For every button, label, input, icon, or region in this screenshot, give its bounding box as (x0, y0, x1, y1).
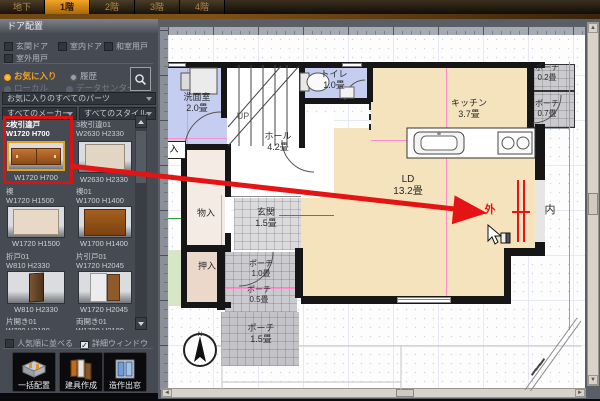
scroll-thumb[interactable] (136, 131, 146, 183)
part-item-title: 両開き01 W1700 H2180 (76, 317, 124, 330)
scroll-down-button[interactable]: ▼ (588, 375, 598, 385)
drawing-area[interactable]: 入 洗面室2.0畳 UP トイレ1.0畳 キッチン3.7畳 ホール4.2畳 LD… (168, 35, 585, 391)
filter-interior-door[interactable]: 室内ドア (58, 37, 102, 55)
part-thumbnail[interactable] (78, 141, 132, 173)
part-item-title: 3枚引違01 W2630 H2330 (76, 120, 124, 138)
detail-window-option[interactable]: ✓詳細ウィンドウ (80, 334, 148, 352)
part-item-title: 片引戸01 W1720 H2045 (76, 252, 124, 270)
part-item-title: 折戸01 W810 H2330 (6, 252, 50, 270)
part-item-title: 襖01 W1700 H1400 (76, 187, 124, 205)
tab-floor-4[interactable]: 4階 (180, 0, 225, 14)
room-label-hall: ホール4.2畳 (252, 131, 304, 153)
part-caption: W1720 H2045 (74, 305, 134, 314)
checkbox-icon[interactable] (104, 42, 113, 51)
tab-basement[interactable]: 地下 (0, 0, 45, 14)
part-caption: W1720 H700 (2, 173, 70, 182)
room-label-oshiire: 押入 (188, 261, 226, 272)
room-label-ld: LD13.2畳 (376, 174, 440, 198)
batch-place-button[interactable]: 一括配置 (12, 352, 56, 392)
room-label-porch10: ポーチ1.0畳 (238, 259, 284, 279)
sliding-door-2panel-image (11, 148, 61, 165)
option-label: 詳細ウィンドウ (92, 339, 148, 348)
diagonal-annotation (525, 318, 581, 391)
door-placement-panel: ドア配置 玄関ドア 室内ドア 和室用戸 室外用戸 お気に入り 履歴 ローカル デ… (0, 19, 158, 393)
scroll-up-button[interactable] (135, 115, 147, 128)
horizontal-ruler (168, 27, 585, 35)
window-midline (397, 299, 451, 300)
button-label: 建具作成 (65, 380, 97, 391)
tab-floor-1[interactable]: 1階 (45, 0, 90, 14)
fusuma01-image (84, 209, 126, 236)
triangle-down-icon (138, 322, 144, 326)
sliding-door-3panel-image (85, 144, 125, 170)
scroll-thumb[interactable] (588, 193, 598, 215)
room-label-porch02: ポーチ0.2畳 (524, 63, 570, 83)
checkbox-icon[interactable] (5, 339, 14, 348)
bay-window-icon (111, 358, 139, 380)
part-item-title: 片開き01 W780 H2180 (6, 317, 50, 330)
dropdown-value: お気に入りのすべてのパーツ (7, 94, 110, 103)
fixture-create-icon (67, 358, 95, 380)
folding-door-image (29, 272, 44, 302)
part-item-title: 襖 W1720 H1500 (6, 187, 54, 205)
part-caption: W1720 H1500 (2, 239, 70, 248)
filter-label: 和室用戸 (116, 42, 148, 51)
kitchen-counter-icon (407, 128, 535, 158)
checkbox-icon[interactable] (4, 54, 13, 63)
chevron-down-icon (146, 97, 152, 101)
part-thumbnail[interactable] (7, 271, 65, 304)
tab-floor-3[interactable]: 3階 (135, 0, 180, 14)
parts-scrollbar[interactable] (135, 115, 147, 330)
search-icon (134, 73, 147, 86)
tab-floor-2[interactable]: 2階 (90, 0, 135, 14)
batch-place-icon (19, 358, 49, 380)
button-label: 一括配置 (18, 380, 50, 391)
part-thumbnail[interactable] (78, 271, 132, 304)
divider (3, 348, 153, 349)
single-sliding-door-image (90, 273, 120, 302)
button-label: 造作出窓 (109, 380, 141, 391)
divider (3, 63, 153, 64)
scroll-up-button[interactable]: ▲ (588, 23, 598, 33)
filter-label: 室外用戸 (16, 54, 48, 63)
part-caption: W1700 H1400 (74, 239, 134, 248)
partial-room-label: 入 (168, 141, 186, 159)
scroll-down-button[interactable] (135, 317, 147, 330)
sort-by-popularity-option[interactable]: 人気順に並べる (5, 334, 73, 352)
stairs-up-label: UP (228, 111, 258, 122)
room-label-porch05: ポーチ0.5畳 (236, 285, 282, 305)
outside-label: 外 (480, 205, 500, 216)
room-label-kitchen: キッチン3.7畳 (438, 98, 500, 120)
part-caption: W810 H2330 (2, 305, 70, 314)
site-boundary (189, 346, 581, 391)
part-thumbnail-selected[interactable] (7, 141, 65, 171)
plan-canvas: 入 洗面室2.0畳 UP トイレ1.0畳 キッチン3.7畳 ホール4.2畳 LD… (158, 19, 600, 399)
part-thumbnail[interactable] (7, 206, 65, 238)
parts-list: 2枚引違戸 W1720 H700 W1720 H700 3枚引違01 W2630… (2, 115, 134, 330)
triangle-up-icon (138, 120, 144, 124)
fusuma-image (13, 209, 59, 235)
compass-n-label: N (194, 330, 206, 341)
parts-filter-dropdown[interactable]: お気に入りのすべてのパーツ (2, 92, 156, 105)
door-preview-tick (512, 211, 530, 213)
mouse-cursor-icon (486, 224, 518, 248)
floor-tab-bar: 地下 1階 2階 3階 4階 (0, 0, 600, 14)
room-label-toilet: トイレ1.0畳 (305, 69, 363, 91)
room-label-monoire: 物入 (187, 208, 225, 219)
room-label-washroom: 洗面室2.0畳 (168, 92, 226, 114)
checkbox-icon[interactable] (58, 42, 67, 51)
room-label-porch07: ポーチ0.7畳 (524, 99, 570, 119)
filter-washitsu-door[interactable]: 和室用戸 (104, 37, 148, 55)
inside-label: 内 (540, 205, 560, 216)
part-item-title: 2枚引違戸 W1720 H700 (6, 120, 50, 138)
panel-title: ドア配置 (0, 19, 158, 33)
filter-exterior-door[interactable]: 室外用戸 (4, 49, 48, 67)
washbasin-icon (181, 68, 217, 94)
fixture-create-button[interactable]: 建具作成 (59, 352, 103, 392)
room-label-porch15: ポーチ1.5畳 (238, 323, 284, 345)
part-thumbnail[interactable] (78, 206, 132, 238)
vertical-ruler (160, 27, 168, 391)
option-label: 人気順に並べる (17, 339, 73, 348)
room-label-genkan: 玄関1.5畳 (238, 207, 294, 229)
search-button[interactable] (130, 67, 151, 91)
floor-plan-app-window: { "tabs": { "floors": [ {"label": "地下", … (0, 0, 600, 401)
filter-label: 室内ドア (70, 42, 102, 51)
bay-window-button[interactable]: 造作出窓 (103, 352, 147, 392)
part-caption: W2630 H2330 (74, 175, 134, 184)
canvas-vscrollbar[interactable]: ▲ ▼ (587, 22, 599, 386)
